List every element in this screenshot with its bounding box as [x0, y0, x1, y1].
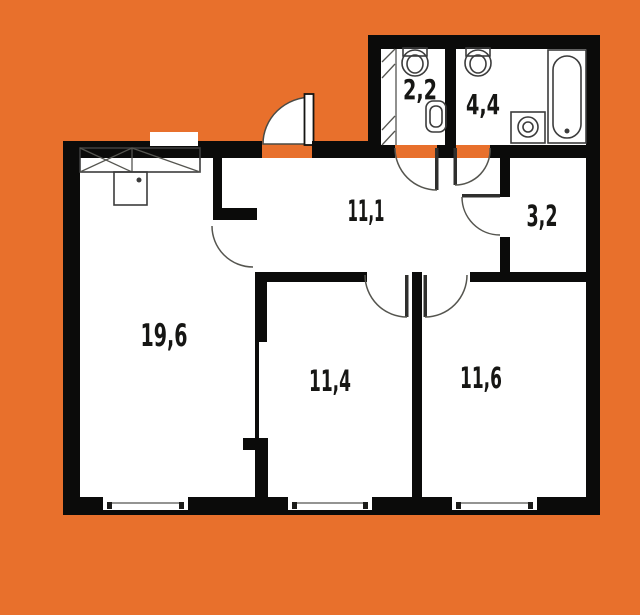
area-label-wc: 2,2	[403, 73, 437, 106]
window-bedroom-1	[288, 484, 372, 510]
area-label-living-room: 19,6	[141, 318, 188, 354]
area-label-hallway: 11,1	[348, 194, 385, 228]
area-label-bedroom-2: 11,6	[460, 361, 502, 395]
window-bedroom-2	[452, 484, 537, 510]
area-label-bathroom: 4,4	[466, 88, 500, 121]
area-label-storage: 3,2	[527, 199, 558, 233]
page-background: 19,6 11,1 11,4 11,6 2,2 4,4 3,2	[0, 0, 640, 615]
area-label-bedroom-1: 11,4	[309, 364, 351, 398]
top-wall-window	[150, 132, 198, 146]
entrance-door	[263, 94, 314, 145]
window-living-room	[103, 484, 188, 510]
floor-plan: 19,6 11,1 11,4 11,6 2,2 4,4 3,2	[0, 0, 640, 615]
